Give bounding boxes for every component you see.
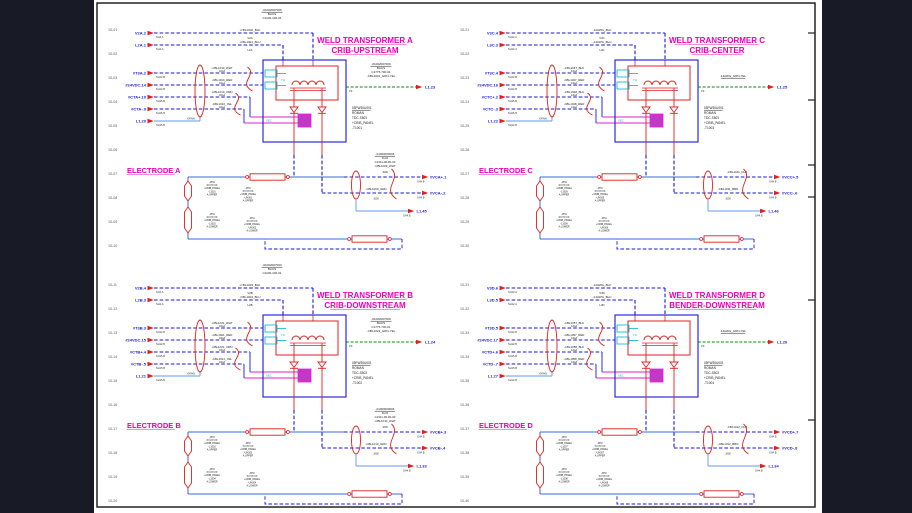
component-label: A:UPPER [243,199,254,202]
line-number: 10-24 [460,100,469,104]
signal-name: #CTA+.10 [128,94,147,99]
sheet-ref: SH12.B [508,123,517,127]
quadrant-D: 10-3110-3210-3310-3410-3510-3610-3710-38… [460,283,799,504]
drain-label: -DRAIN [187,118,196,121]
sheet-ref: SH4.A [156,35,164,39]
signal-name: #24VDC.17 [477,337,498,342]
component-label: A:LOWER [598,229,609,232]
wire-gauge: 1000 [725,453,731,456]
cable-group-ellipse [704,426,713,454]
line-number: 10-11 [108,283,117,287]
signal-name: V2B.4 [135,285,147,290]
wire-gauge: 10GA [219,337,226,340]
wire-gauge: 14GA [571,70,578,73]
sheet-ref: SH12.B [508,75,517,79]
cable-label: -14AWG_BLU [593,295,612,299]
signal-name: L3C.3 [487,42,499,47]
sheet-ref: SH4.B [403,469,411,473]
wire-arrow-icon [760,464,766,469]
primary-terminal [265,337,277,344]
quadrant-C: 10-2110-2210-2310-2410-2510-2610-2710-28… [460,28,799,249]
signal-name: L1.22 [488,118,499,123]
sheet-ref: SH15.B [508,366,517,370]
block-line: +CRIB_PANEL [704,121,726,125]
sheet-ref: SH4.B [769,451,777,455]
sheet-ref: SH4.B [769,435,777,439]
block-line: C1100-100-01 [263,16,282,20]
diode-icon [670,107,678,113]
shunt-symbol [704,236,739,242]
drain-label: -DRAIN [539,373,548,376]
sheet-ref: SH4.B [417,451,425,455]
line-number: 10-08 [108,196,117,200]
cable-label: -CBL1011_CLR [727,170,747,174]
signal-name: L1.20 [136,118,147,123]
sheet-ref: SH4.B [755,469,763,473]
block-line: 05FW30U001 [704,361,724,365]
wire-arrow-icon [422,446,428,451]
signal-name: L2B.3 [135,297,147,302]
component-label: A:UPPER [243,454,254,457]
cable-break-icon [587,348,593,370]
pe-label: PE [701,344,705,348]
wire-arrow-icon [408,464,414,469]
th-label: TH [281,78,285,82]
block-line: +CRIB_PANEL [352,121,374,125]
cable-break-icon [391,169,397,199]
wire-gauge: 1000 [373,198,379,201]
wire-arrow-icon [500,350,506,355]
line-number: 10-02 [108,52,117,56]
wire-gauge: 10GA [219,82,226,85]
signal-name: #CTC-.3 [483,106,499,111]
sheet-ref: SH4.B [417,435,425,439]
wire-arrow-icon [500,362,506,367]
signal-name: #24VDC.14 [125,82,146,87]
cable-group-ellipse [352,426,361,454]
line-number: 10-07 [108,172,117,176]
wire-arrow-icon [416,85,422,90]
sec-label: SEC. [266,374,273,378]
sheet-ref: SH15.B [156,99,165,103]
wire-arrow-icon [416,340,422,345]
line-number: 10-36 [460,403,469,407]
block-line: -14AWG_GRN-YEL [720,74,747,78]
wire-arrow-icon [500,286,506,291]
cable-break-icon [235,93,241,115]
cable-group-ellipse [352,171,361,199]
line-number: 10-37 [460,427,469,431]
transformer-title: WELD TRANSFORMER C [669,36,765,45]
sheet-ref: SH12.B [156,87,165,91]
drawing-sheet: 10-0110-0210-0310-0410-0510-0610-0710-08… [94,0,822,513]
signal-name: #CTD-.7 [483,361,499,366]
diode-icon [290,107,298,113]
shunt-symbol [352,236,387,242]
line-number: 10-17 [108,427,117,431]
wire-arrow-icon [774,191,780,196]
primary-terminal [265,325,277,332]
pe-label: PE [701,89,705,93]
sheet-ref: SH15.B [156,111,165,115]
transformer-title: WELD TRANSFORMER B [317,291,413,300]
cable-break-icon [599,322,605,346]
cable-sub: L3C [599,48,604,52]
sheet-ref: SH12.B [508,378,517,382]
cable-label: -14AWG_BLK [593,283,612,287]
wire-arrow-icon [500,298,506,303]
wire-arrow-icon [408,209,414,214]
sheet-ref: SH4.A [156,290,164,294]
pe-exit-name: L1.23 [425,85,436,90]
block-line: C1100-100-01 [263,271,282,275]
wire-arrow-icon [148,107,154,112]
line-number: 10-32 [460,307,469,311]
component-label: A:UPPER [207,193,218,196]
wire-arrow-icon [500,71,506,76]
sheet-ref: SH4.B [417,180,425,184]
cable-label: -CBL1012_BRN [718,442,739,446]
line-number: 10-34 [460,355,469,359]
block-line: 05FW30U001 [352,106,372,110]
transformer-core-box [628,321,690,355]
wire-gauge: 10GA [219,361,226,364]
block-line: TDC-S503 [352,371,367,375]
wire-arrow-icon [500,374,506,379]
block-line: 05FW30U001 [704,106,724,110]
diode-icon [290,362,298,368]
component-label: A:UPPER [559,193,570,196]
block-line: -CBL1022_GRN-YEL [367,329,396,333]
sec-terminal-block [298,114,311,127]
sheet-ref: SH15.B [156,378,165,382]
transformer-enclosure [615,315,698,397]
cable-label: -CBL1010_GRN [365,442,386,446]
wire-arrow-icon [768,340,774,345]
line-number: 10-06 [108,148,117,152]
block-line: TDC-S503 [704,371,719,375]
line-number: 10-35 [460,379,469,383]
shunt-symbol [250,174,285,180]
wire-gauge: 10GA [219,349,226,352]
component-label: A:LOWER [246,229,257,232]
lug-symbol [185,181,192,201]
diode-icon [642,362,650,368]
sheet-ref: SH15.B [508,99,517,103]
pe-label: PE [349,89,353,93]
wire-arrow-icon [774,446,780,451]
line-number: 10-23 [460,76,469,80]
transformer-subtitle: CRIB-DOWNSTREAM [324,301,406,310]
sheet-ref: SH12.B [508,330,517,334]
wire-gauge: 1000 [382,171,388,174]
signal-name: #CTB+.4 [130,349,147,354]
cable-label: -CBL1001_BLU [239,40,260,44]
component-label: A:UPPER [207,448,218,451]
signal-name: L3D.5 [487,297,499,302]
cable-break-icon [599,67,605,91]
transformer-subtitle: BENDER-DOWNSTREAM [669,301,765,310]
signal-name: L1.34 [769,464,780,469]
signal-name: V3C.4 [487,30,499,35]
cable-label: -CBL1012_CLR [727,425,747,429]
signal-name: #VCB-.4 [430,445,446,450]
line-number: 10-09 [108,220,117,224]
wire-arrow-icon [500,43,506,48]
cable-label: -14AWG_BLU [593,40,612,44]
block-line: +CRIB_PANEL [352,376,374,380]
diode-icon [318,362,326,368]
electrode-title: ELECTRODE B [127,421,181,430]
sheet-ref: SH15.B [156,123,165,127]
wire-gauge: 10GA [219,70,226,73]
wire-arrow-icon [500,107,506,112]
line-number: 10-33 [460,331,469,335]
wire-gauge: 10GA [219,94,226,97]
quadrant-B: 10-1110-1210-1310-1410-1510-1610-1710-18… [108,263,447,504]
wire-gauge: 14GA [571,325,578,328]
cable-label: -CBL1003_BLK [240,283,261,287]
diode-icon [642,107,650,113]
wire-arrow-icon [422,175,428,180]
lug-symbol [537,436,544,456]
sheet-ref: SH4.A [156,302,164,306]
signal-name: V2A.2 [135,30,147,35]
sheet-ref: SH15.B [508,354,517,358]
signal-name: #24VDC.16 [477,82,498,87]
signal-name: #CTC+.2 [482,94,499,99]
sheet-ref: SH12.A [508,47,517,51]
signal-name: #VCC+.5 [782,174,799,179]
component-label: A:LOWER [598,484,609,487]
shunt-symbol [250,429,285,435]
component-label: A:UPPER [595,199,606,202]
line-number: 10-39 [460,475,469,479]
cable-group-ellipse [704,171,713,199]
line-number: 10-10 [108,244,117,248]
signal-name: #CTB-.5 [131,361,147,366]
signal-name: L1.45 [417,209,428,214]
cable-sub: L2B [248,303,253,307]
wire-arrow-icon [148,350,154,355]
component-label: A:LOWER [558,225,569,228]
wire-gauge: 14GA [571,82,578,85]
line-number: 10-15 [108,379,117,383]
transformer-coil-icon [644,336,676,340]
transformer-title: WELD TRANSFORMER A [317,36,413,45]
signal-name: #VCD-.8 [782,445,798,450]
component-label: A:LOWER [558,480,569,483]
cable-label: -CBL1002_BLK [240,28,261,32]
line-number: 10-40 [460,499,469,503]
line-number: 10-27 [460,172,469,176]
line-number: 10-18 [108,451,117,455]
signal-name: #CTA-.9 [131,106,147,111]
shunt-symbol [602,429,637,435]
line-number: 10-13 [108,331,117,335]
wire-arrow-icon [774,430,780,435]
block-line: -CBL1010_WHT [374,419,395,423]
signal-name: #T3A.2 [133,70,147,75]
wire-arrow-icon [148,43,154,48]
primary-terminal [617,82,629,89]
line-number: 10-14 [108,355,117,359]
wire-arrow-icon [500,83,506,88]
sheet-ref: SH4.B [403,214,411,218]
line-number: 10-21 [460,28,469,32]
sheet-ref: SH12.B [508,342,517,346]
sheet-ref: SH4.B [755,214,763,218]
sheet-ref: SH15.B [156,354,165,358]
transformer-enclosure [263,315,346,397]
lug-symbol [185,462,192,488]
transformer-core-box [628,66,690,100]
sheet-ref: SH12.A [508,290,517,294]
wire-arrow-icon [422,430,428,435]
transformer-coil-icon [644,81,676,85]
transformer-enclosure [615,60,698,142]
sheet-ref: SH12.B [156,330,165,334]
wire-gauge: 14GA [571,349,578,352]
wire-arrow-icon [500,326,506,331]
block-line: ROMAN [704,111,717,115]
block-line: -T1004 [704,381,714,385]
primary-terminal [265,82,277,89]
line-number: 10-01 [108,28,117,32]
signal-name: L1.33 [417,464,428,469]
wire-gauge: 14GA [571,337,578,340]
signal-name: L1.21 [136,373,147,378]
app-background: 10-0110-0210-0310-0410-0510-0610-0710-08… [0,0,912,513]
line-number: 10-03 [108,76,117,80]
line-number: 10-38 [460,451,469,455]
sheet-ref: SH12.A [508,35,517,39]
cable-break-icon [247,67,253,91]
transformer-subtitle: CRIB-CENTER [689,46,744,55]
shunt-symbol [602,174,637,180]
block-line: ROMAN [352,111,365,115]
line-number: 10-12 [108,307,117,311]
line-number: 10-05 [108,124,117,128]
wire-gauge: 10GA [219,106,226,109]
component-label: A:UPPER [559,448,570,451]
primary-terminal [617,325,629,332]
signal-name: #T3C.4 [485,70,499,75]
lug-symbol [537,462,544,488]
transformer-title: WELD TRANSFORMER D [669,291,765,300]
wire-arrow-icon [148,374,154,379]
block-line: 05FW30U001 [352,361,372,365]
sheet-ref: SH15.B [156,366,165,370]
sheet-ref: SH12.B [156,75,165,79]
wire-arrow-icon [148,31,154,36]
sheet-ref: SH4.B [769,180,777,184]
th-label: TH [633,333,637,337]
sec-label: SEC. [618,374,625,378]
transformer-coil-icon [292,336,324,340]
pe-label: PE [349,344,353,348]
wire-arrow-icon [148,338,154,343]
block-line: -T1002 [352,381,362,385]
line-number: 10-20 [108,499,117,503]
signal-name: L2A.1 [135,42,147,47]
sheet-ref: SH4.B [769,196,777,200]
wire-arrow-icon [148,326,154,331]
shunt-symbol [352,491,387,497]
cable-label: -CBL1009_GRN [365,187,386,191]
wire-gauge: 14GA [571,361,578,364]
component-label: A:LOWER [206,225,217,228]
signal-name: V3D.6 [487,285,499,290]
cable-break-icon [235,348,241,370]
transformer-subtitle: CRIB-UPSTREAM [331,46,398,55]
transformer-enclosure [263,60,346,142]
wire-arrow-icon [148,362,154,367]
drain-label: -DRAIN [187,373,196,376]
wire-arrow-icon [774,175,780,180]
diode-icon [670,362,678,368]
sheet-ref: SH4.A [156,47,164,51]
wire-arrow-icon [422,191,428,196]
wire-arrow-icon [760,209,766,214]
signal-name: #VCD+.7 [782,429,799,434]
signal-name: #24VDC.15 [125,337,146,342]
wire-arrow-icon [500,119,506,124]
block-line: -T1003 [704,126,714,130]
wire-arrow-icon [148,95,154,100]
line-number: 10-28 [460,196,469,200]
line-number: 10-16 [108,403,117,407]
block-line: TDC-S503 [352,116,367,120]
signal-name: L1.46 [769,209,780,214]
cable-break-icon [587,93,593,115]
sheet-ref: SH15.B [508,111,517,115]
shunt-symbol [704,491,739,497]
sheet-ref: SH4.B [417,196,425,200]
th-label: TH [633,78,637,82]
sheet-ref: SH12.B [156,342,165,346]
primary-terminal [617,337,629,344]
signal-name: #VCA-.2 [430,190,446,195]
cable-break-icon [247,322,253,346]
signal-name: L1.27 [488,373,499,378]
transformer-core-box [276,321,338,355]
component-label: A:LOWER [246,484,257,487]
lug-symbol [185,436,192,456]
sec-terminal-block [650,369,663,382]
wire-gauge: 14GA [571,94,578,97]
lug-symbol [537,207,544,233]
component-label: A:LOWER [206,480,217,483]
signal-name: #VCC-.6 [782,190,798,195]
wire-arrow-icon [148,286,154,291]
block-line: ROMAN [704,366,717,370]
wire-arrow-icon [148,119,154,124]
wire-arrow-icon [500,95,506,100]
signal-name: #CTD+.6 [482,349,499,354]
line-number: 10-22 [460,52,469,56]
pe-exit-name: L1.25 [777,85,788,90]
wire-arrow-icon [148,298,154,303]
cable-label: -CBL1004_BLU [239,295,260,299]
drain-label: -DRAIN [539,118,548,121]
signal-name: #VCA+.1 [430,174,447,179]
wire-arrow-icon [148,71,154,76]
wire-arrow-icon [500,338,506,343]
wire-arrow-icon [148,83,154,88]
block-line: -CBL1001_GRN-YEL [367,74,396,78]
th-label: TH [281,333,285,337]
